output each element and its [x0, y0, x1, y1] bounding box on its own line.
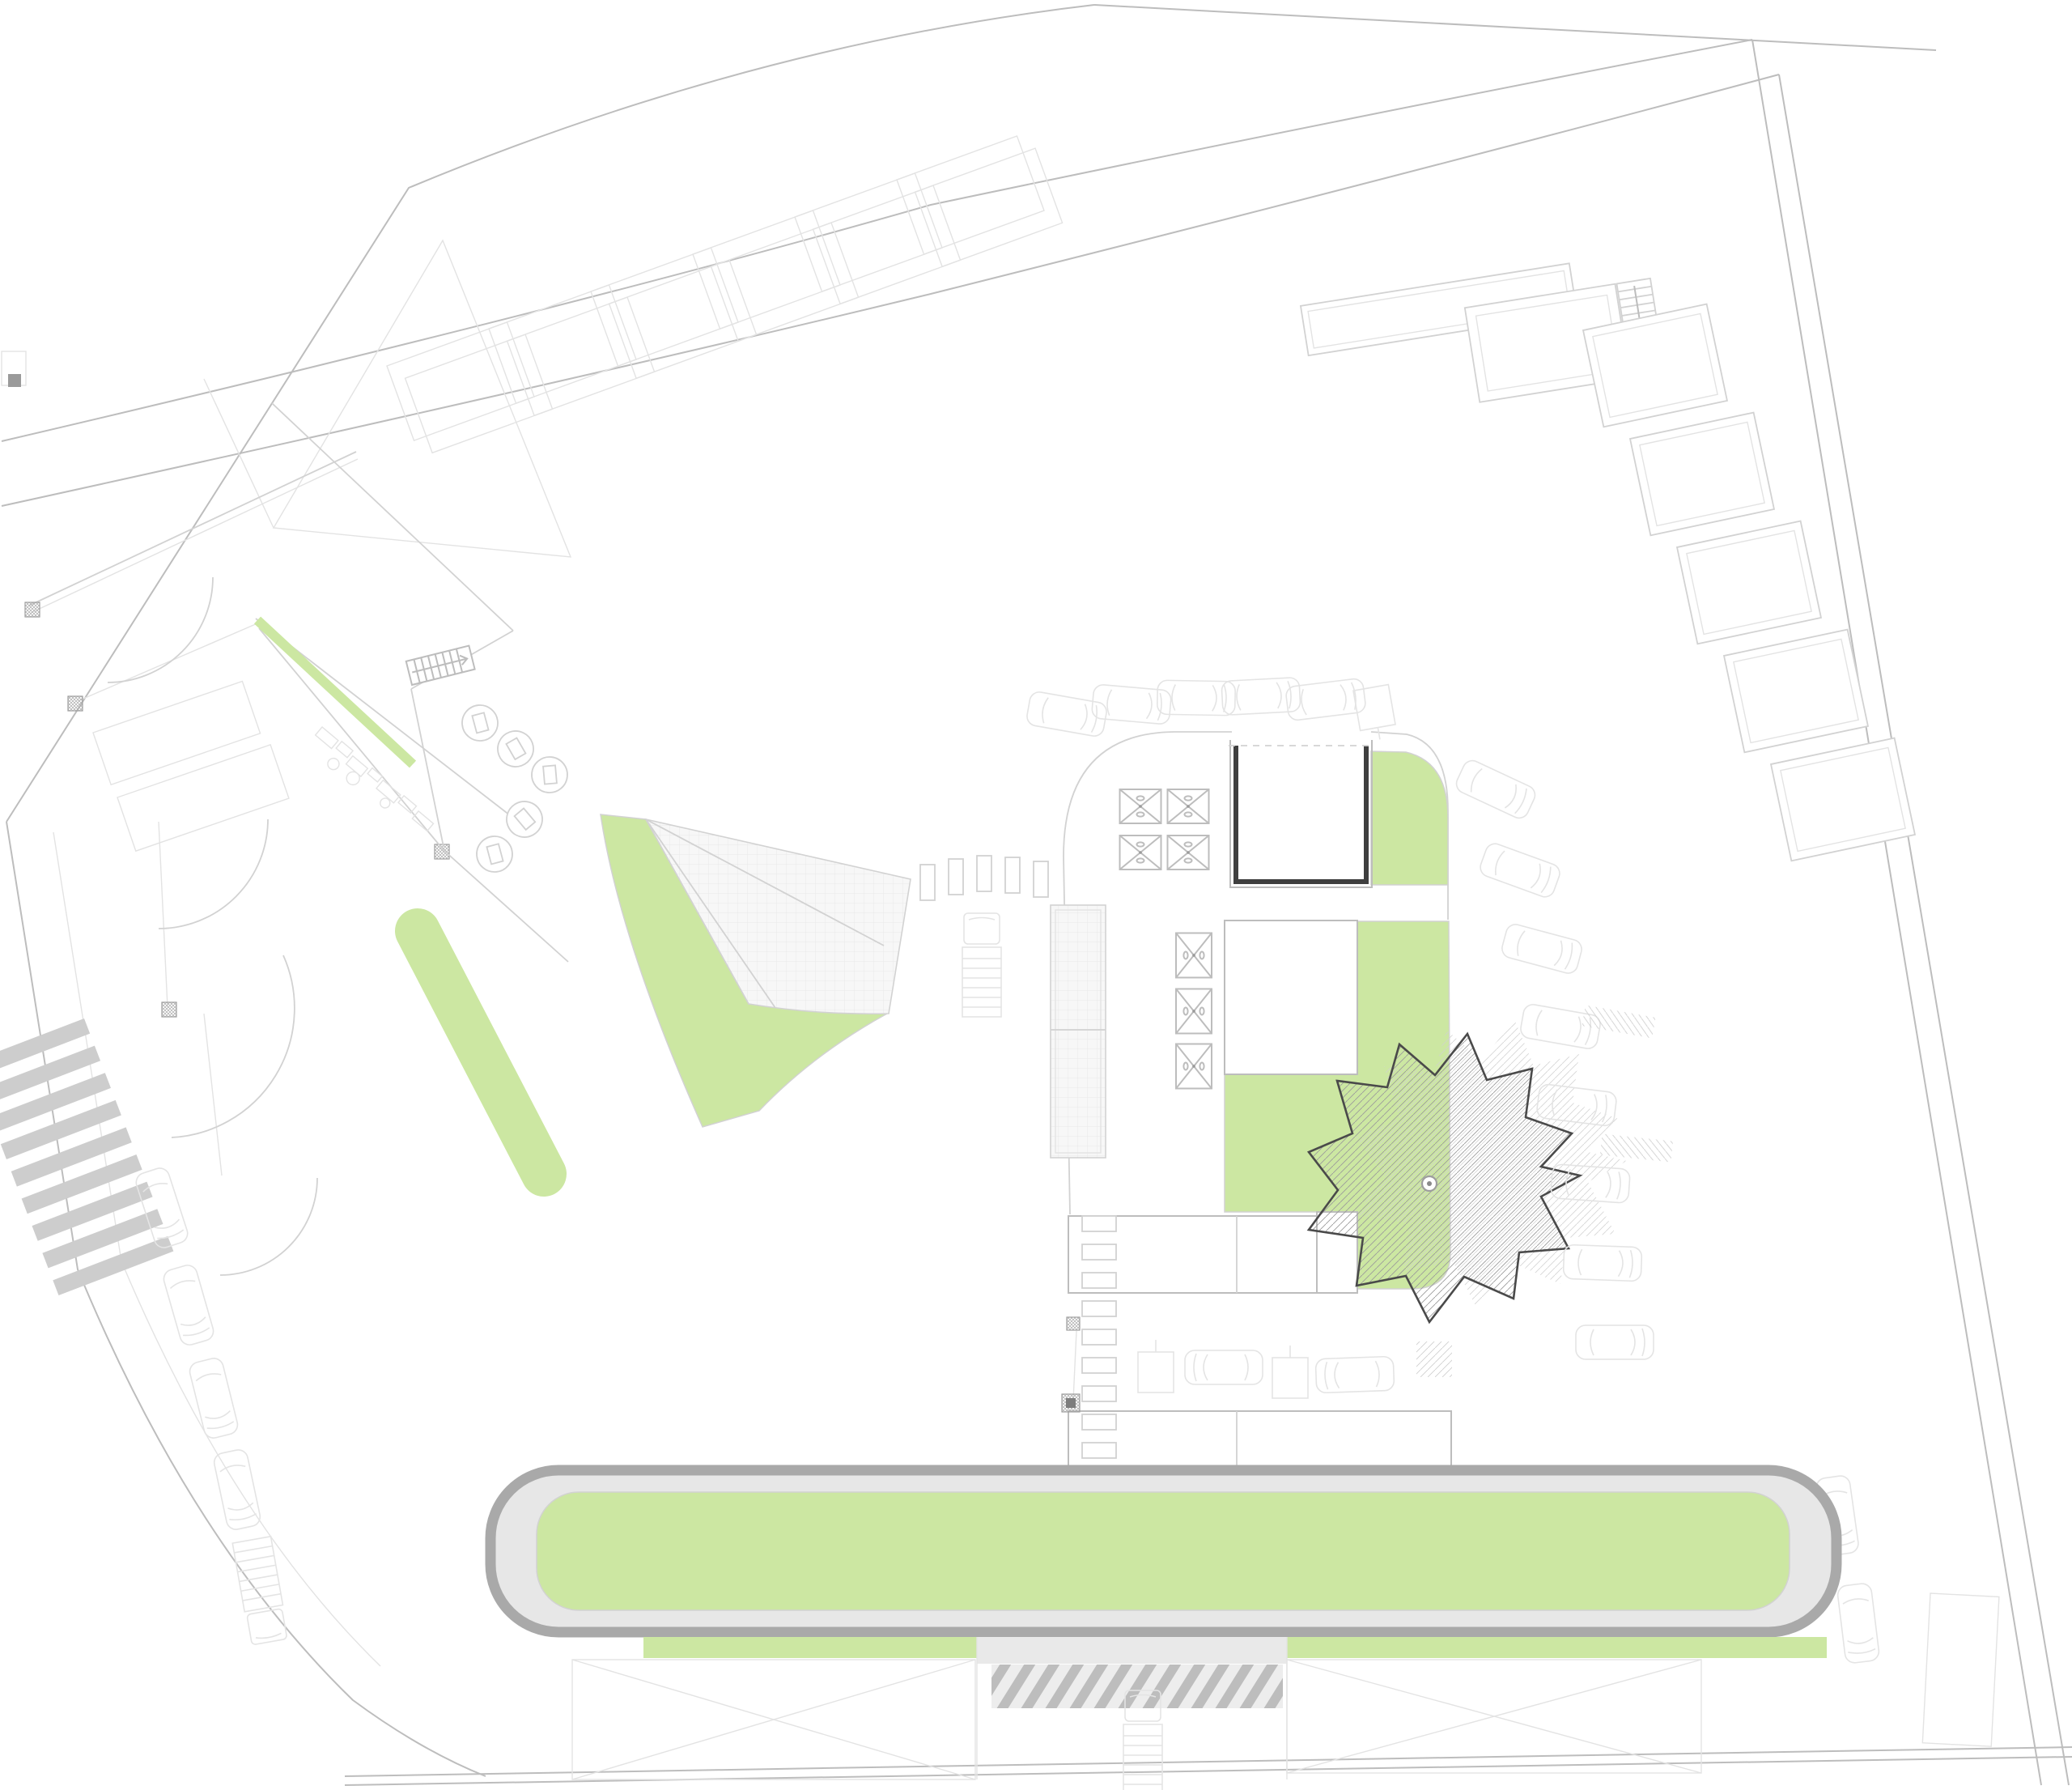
door-swing-arc — [159, 819, 268, 929]
wing-top-edge — [272, 403, 513, 631]
room-row-lower — [1068, 1411, 1451, 1466]
skylight-grid — [1120, 789, 1209, 869]
hatched-parking-pad — [1582, 1006, 1655, 1039]
service-lane-vehicles — [1138, 1340, 1452, 1398]
stepped-roof-echoes — [405, 148, 1063, 453]
step — [1082, 1301, 1116, 1316]
x-plot-east — [1287, 1660, 1701, 1773]
door-swing-arc — [220, 1178, 317, 1275]
step — [920, 865, 935, 900]
pier-link-line — [1073, 1331, 1076, 1401]
lawn-sliver — [257, 620, 413, 764]
boundary-top-right-diagonal — [1094, 5, 1936, 50]
hatched-pallet — [1416, 1341, 1452, 1377]
gate-pier — [68, 696, 83, 711]
stepped-roof-chain — [204, 136, 1063, 557]
skylight — [1168, 789, 1209, 823]
terrace-table — [503, 797, 546, 841]
fence-north-inner — [31, 459, 358, 613]
nw-truck — [962, 913, 1001, 1017]
boundary-left-inner — [53, 832, 380, 1666]
door-swing-arc — [108, 577, 213, 682]
skylight — [1168, 835, 1209, 869]
tree-trunk-core — [1427, 1181, 1432, 1186]
central-plaza — [920, 732, 1627, 1466]
parked-car — [188, 1356, 240, 1439]
parked-car — [1563, 1244, 1641, 1281]
step — [1082, 1216, 1116, 1231]
x-plot-west — [572, 1660, 975, 1779]
crosswalk — [0, 1018, 173, 1295]
skylight — [1120, 835, 1161, 869]
lawn-northeast — [1371, 751, 1448, 885]
skylight — [1176, 1044, 1212, 1089]
step — [949, 859, 963, 895]
car-trailer — [1138, 1340, 1174, 1392]
step — [1082, 1244, 1116, 1260]
gate-pier — [25, 602, 40, 617]
pitched-roof-triangle — [204, 240, 571, 557]
garage-ramp — [991, 1665, 1283, 1708]
parked-car — [1025, 691, 1108, 738]
site-plan-drawing — [0, 0, 2072, 1790]
gate-pier-dark — [1062, 1394, 1080, 1412]
bottom-complex — [490, 1470, 1836, 1790]
parked-car — [1221, 678, 1301, 716]
paved-strip-west — [1051, 905, 1106, 1158]
terrace-table — [469, 829, 520, 879]
west-wing — [256, 403, 575, 962]
parked-car — [1315, 1356, 1394, 1392]
planter-beds — [93, 682, 289, 852]
north-parking-row — [1025, 678, 1398, 743]
skylight — [1176, 989, 1212, 1034]
zigzag-unit — [1771, 738, 1915, 861]
courtyard-walls — [1236, 746, 1366, 882]
skylight — [1176, 933, 1212, 978]
corner-gate-pier — [8, 374, 21, 387]
skylight — [1120, 789, 1161, 823]
fence-segment-a — [78, 623, 257, 701]
parked-car — [1500, 922, 1584, 975]
site-plan-page: Architectural site plan — residential co… — [0, 0, 2072, 1790]
plaza-steps-nw — [920, 856, 1048, 900]
lawn-band — [418, 931, 544, 1174]
parked-car — [1478, 841, 1563, 899]
car-trailer — [1272, 1346, 1308, 1398]
skylight-column — [1176, 933, 1212, 1089]
courtyard — [1229, 740, 1374, 887]
terrace-stair — [406, 646, 475, 685]
step — [1082, 1414, 1116, 1430]
step — [1082, 1386, 1116, 1401]
step — [1005, 857, 1020, 893]
parked-truck — [232, 1537, 288, 1645]
boundary-top-outer — [6, 5, 1094, 822]
green-band-core — [537, 1492, 1790, 1610]
parked-car — [1185, 1350, 1263, 1384]
east-steps — [1082, 1216, 1116, 1458]
gate-piers — [25, 602, 449, 1017]
parked-car — [162, 1263, 216, 1347]
parked-car — [134, 1166, 190, 1250]
gate-pier — [162, 1002, 176, 1017]
zigzag-unit — [1677, 521, 1821, 644]
zigzag-unit — [1630, 413, 1774, 536]
roof-room — [1225, 921, 1357, 1074]
step — [1082, 1273, 1116, 1288]
garage-entry — [977, 1637, 1287, 1790]
terrace-table — [492, 725, 539, 772]
se-plot — [1922, 1593, 1999, 1746]
fence-segment-b — [159, 822, 222, 1176]
terrace-tables — [455, 698, 575, 879]
garage-apron — [977, 1637, 1287, 1664]
zigzag-unit — [1724, 630, 1868, 753]
parked-car — [1576, 1325, 1654, 1359]
fence-north — [29, 452, 356, 606]
gate-pier — [1067, 1317, 1080, 1330]
step — [1082, 1443, 1116, 1458]
step — [1082, 1358, 1116, 1373]
parked-car — [1836, 1583, 1879, 1664]
terrace-table — [455, 698, 505, 748]
left-street-parking — [134, 1166, 289, 1645]
parked-car — [212, 1448, 261, 1532]
step — [977, 856, 991, 891]
step — [1082, 1329, 1116, 1345]
gate-pier — [435, 844, 449, 859]
stepped-roof-units — [387, 136, 1044, 440]
parked-car — [1454, 758, 1539, 822]
step — [1034, 861, 1048, 897]
door-swing-arc — [172, 955, 295, 1137]
